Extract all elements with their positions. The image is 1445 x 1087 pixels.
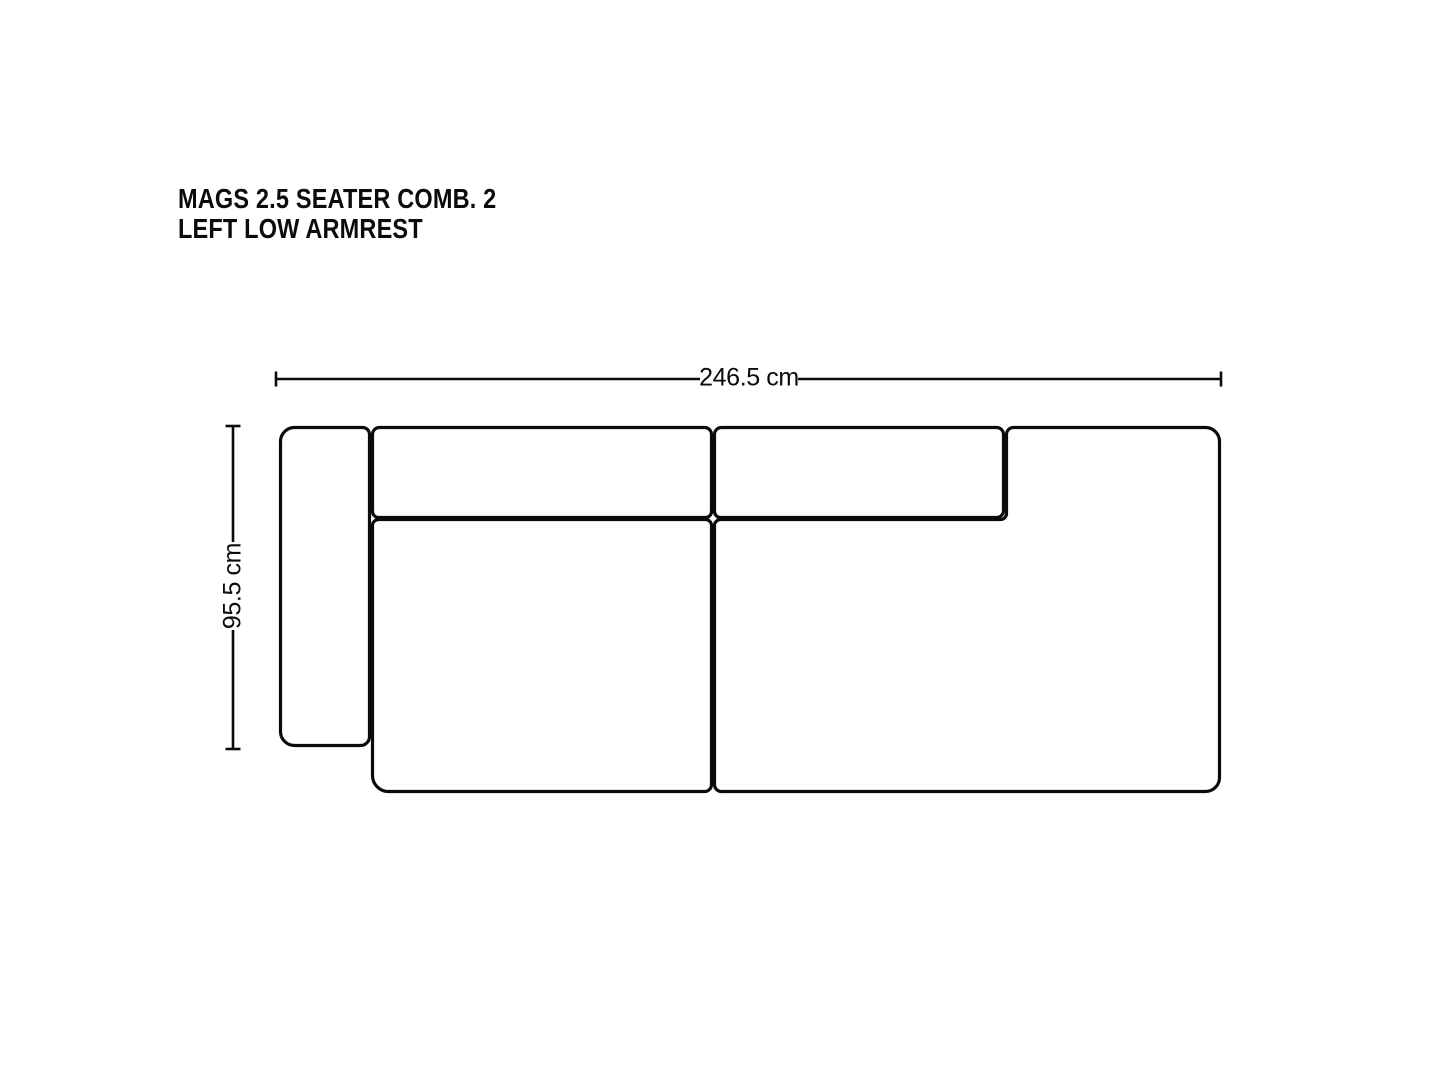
- sofa-top-view-drawing: [0, 0, 1445, 1087]
- product-dimension-diagram-page: MAGS 2.5 SEATER COMB. 2 LEFT LOW ARMREST: [0, 0, 1445, 1087]
- back-cushion-right: [715, 428, 1004, 518]
- depth-dimension-label: 95.5 cm: [219, 543, 248, 629]
- seat-module-left: [373, 520, 712, 792]
- left-low-armrest-module: [281, 428, 370, 746]
- back-cushion-left: [373, 428, 712, 518]
- width-dimension-label: 246.5 cm: [699, 364, 799, 393]
- sofa-top-view: [281, 428, 1220, 792]
